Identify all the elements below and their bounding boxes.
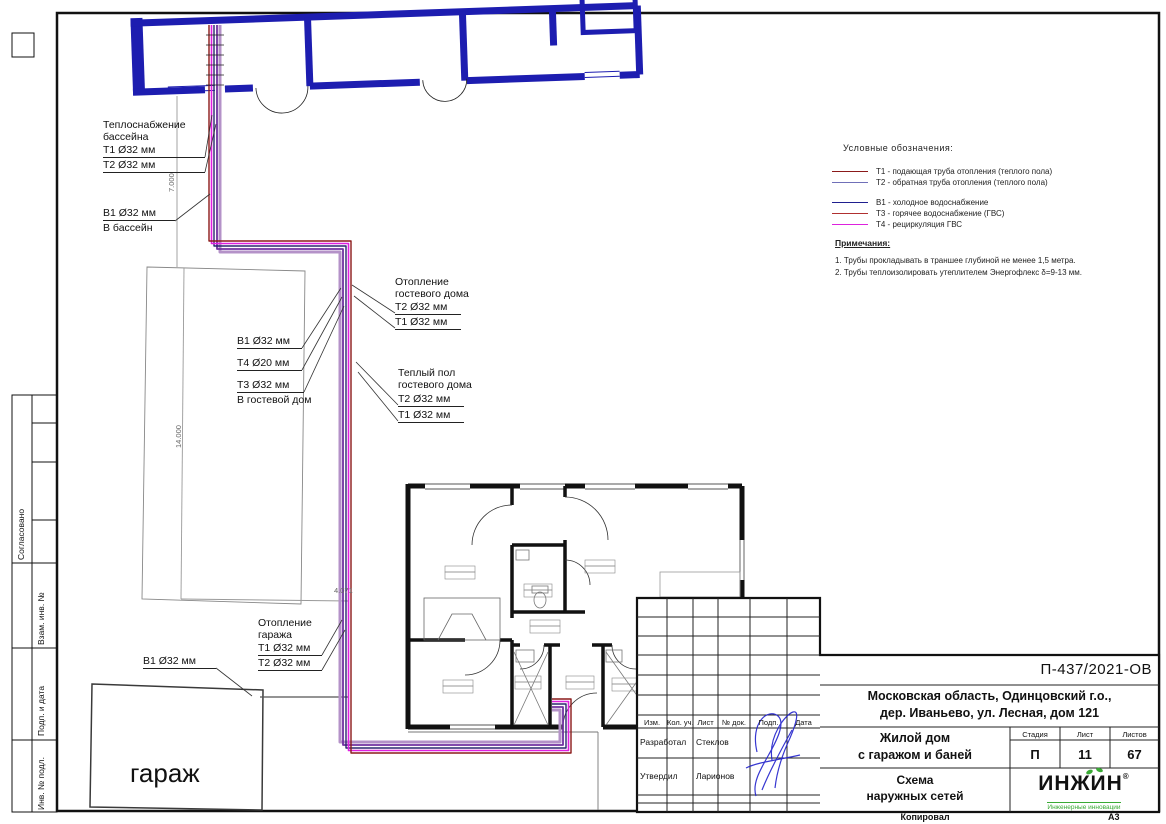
legend-line-t2 [832,182,868,183]
guest-heat-spec-t2: Т2 Ø32 мм [395,302,461,315]
guest-water-spec-t3: Т3 Ø32 мм [237,380,304,393]
stamp-approved: Согласовано [16,509,26,560]
pool-heat-spec-t1: Т1 Ø32 мм [103,145,205,158]
guest-water-spec-t4: Т4 Ø20 мм [237,358,302,371]
doc-number: П-437/2021-ОВ [900,661,1152,678]
col-header-kol: Кол. уч. [667,718,693,727]
sheet-title-line1: Схема [822,773,1008,787]
drawing-sheet: Теплоснабжение бассейна Т1 Ø32 мм Т2 Ø32… [0,0,1166,824]
legend-line-t1 [832,171,868,172]
col-header-doc: № док. [718,718,750,727]
garage-outline [90,684,263,810]
copied-label: Копировал [860,812,990,822]
stamp-inv-orig: Инв. № подл. [36,757,46,810]
role-developed: Разработал [640,737,686,747]
garage-heat-spec-t2: Т2 Ø32 мм [258,658,322,671]
notes-title: Примечания: [835,238,890,248]
stage-value: П [1010,747,1060,762]
guest-water-label: В гостевой дом [237,395,311,407]
legend-title: Условные обозначения: [843,143,953,153]
floor-heat-spec-t1: Т1 Ø32 мм [398,410,464,423]
stamp-replace-inv: Взам. инв. № [36,592,46,645]
legend-item-t2: Т2 - обратная труба отопления (теплого п… [876,178,1048,187]
role-approved: Утвердил [640,771,678,781]
legend-line-b1 [832,202,868,203]
sheet-value: 11 [1060,747,1110,762]
pool-water-spec-b1: В1 Ø32 мм [103,208,175,221]
garage-water-spec-b1: В1 Ø32 мм [143,656,216,669]
dimension-7000: 7.000 [167,173,176,192]
name-larionov: Ларионов [696,771,734,781]
legend-item-b1: В1 - холодное водоснабжение [876,198,988,207]
pool-water-label: В бассейн [103,223,153,235]
floor-heat-label-line2: гостевого дома [398,380,472,392]
logo-text: ИНЖИН® [1038,772,1129,795]
garage-heat-spec-t1: Т1 Ø32 мм [258,643,322,656]
legend-item-t3: Т3 - горячее водоснабжение (ГВС) [876,209,1004,218]
legend-line-t3 [832,213,868,214]
address-line1: Московская область, Одинцовский г.о., [824,689,1155,703]
stage-header: Стадия [1010,730,1060,739]
pool-heat-spec-t2: Т2 Ø32 мм [103,160,205,173]
logo-registered-mark: ® [1123,772,1130,781]
col-header-podp: Подп. [750,718,787,727]
logo-tagline: Инженерные инновации [1047,802,1120,811]
legend-item-t1: Т1 - подающая труба отопления (теплого п… [876,167,1052,176]
guest-heat-label-line2: гостевого дома [395,289,469,301]
address-line2: дер. Иваньево, ул. Лесная, дом 121 [824,706,1155,720]
bath-house-plan [130,0,641,118]
garage-room-label: гараж [130,758,200,789]
sheet-header: Лист [1060,730,1110,739]
guest-heat-spec-t1: Т1 Ø32 мм [395,317,461,330]
dimension-14000: 14.000 [174,425,183,448]
col-header-list: Лист [693,718,718,727]
guest-heat-label-line1: Отопление [395,277,449,289]
object-line1: Жилой дом [822,731,1008,745]
format-label: А3 [1108,812,1120,822]
object-line2: с гаражом и баней [822,748,1008,762]
col-header-izm: Изм. [637,718,667,727]
pool-heat-label-line1: Теплоснабжение [103,120,186,132]
name-steklov: Стеклов [696,737,729,747]
sheets-header: Листов [1110,730,1159,739]
note-1: 1. Трубы прокладывать в траншее глубиной… [835,256,1135,266]
sheets-value: 67 [1110,747,1159,762]
company-logo: ИНЖИН® Инженерные инновации [1014,772,1154,814]
guest-water-spec-b1: В1 Ø32 мм [237,336,302,349]
legend-line-t4 [832,224,868,225]
legend-item-t4: Т4 - рециркуляция ГВС [876,220,962,229]
dimension-4071: 4.071 [334,586,353,595]
garage-heat-label-line1: Отопление [258,618,312,630]
note-2: 2. Трубы теплоизолировать утеплителем Эн… [835,268,1125,278]
col-header-data: Дата [787,718,820,727]
dimension-lines [142,96,598,810]
garage-heat-label-line2: гаража [258,630,292,642]
floor-heat-spec-t2: Т2 Ø32 мм [398,394,464,407]
sheet-title-line2: наружных сетей [822,789,1008,803]
pool-heat-label-line2: бассейна [103,132,148,144]
stamp-sign-date: Подп. и дата [36,686,46,736]
floor-heat-label-line1: Теплый пол [398,368,455,380]
side-stamp-boxes [12,33,57,812]
